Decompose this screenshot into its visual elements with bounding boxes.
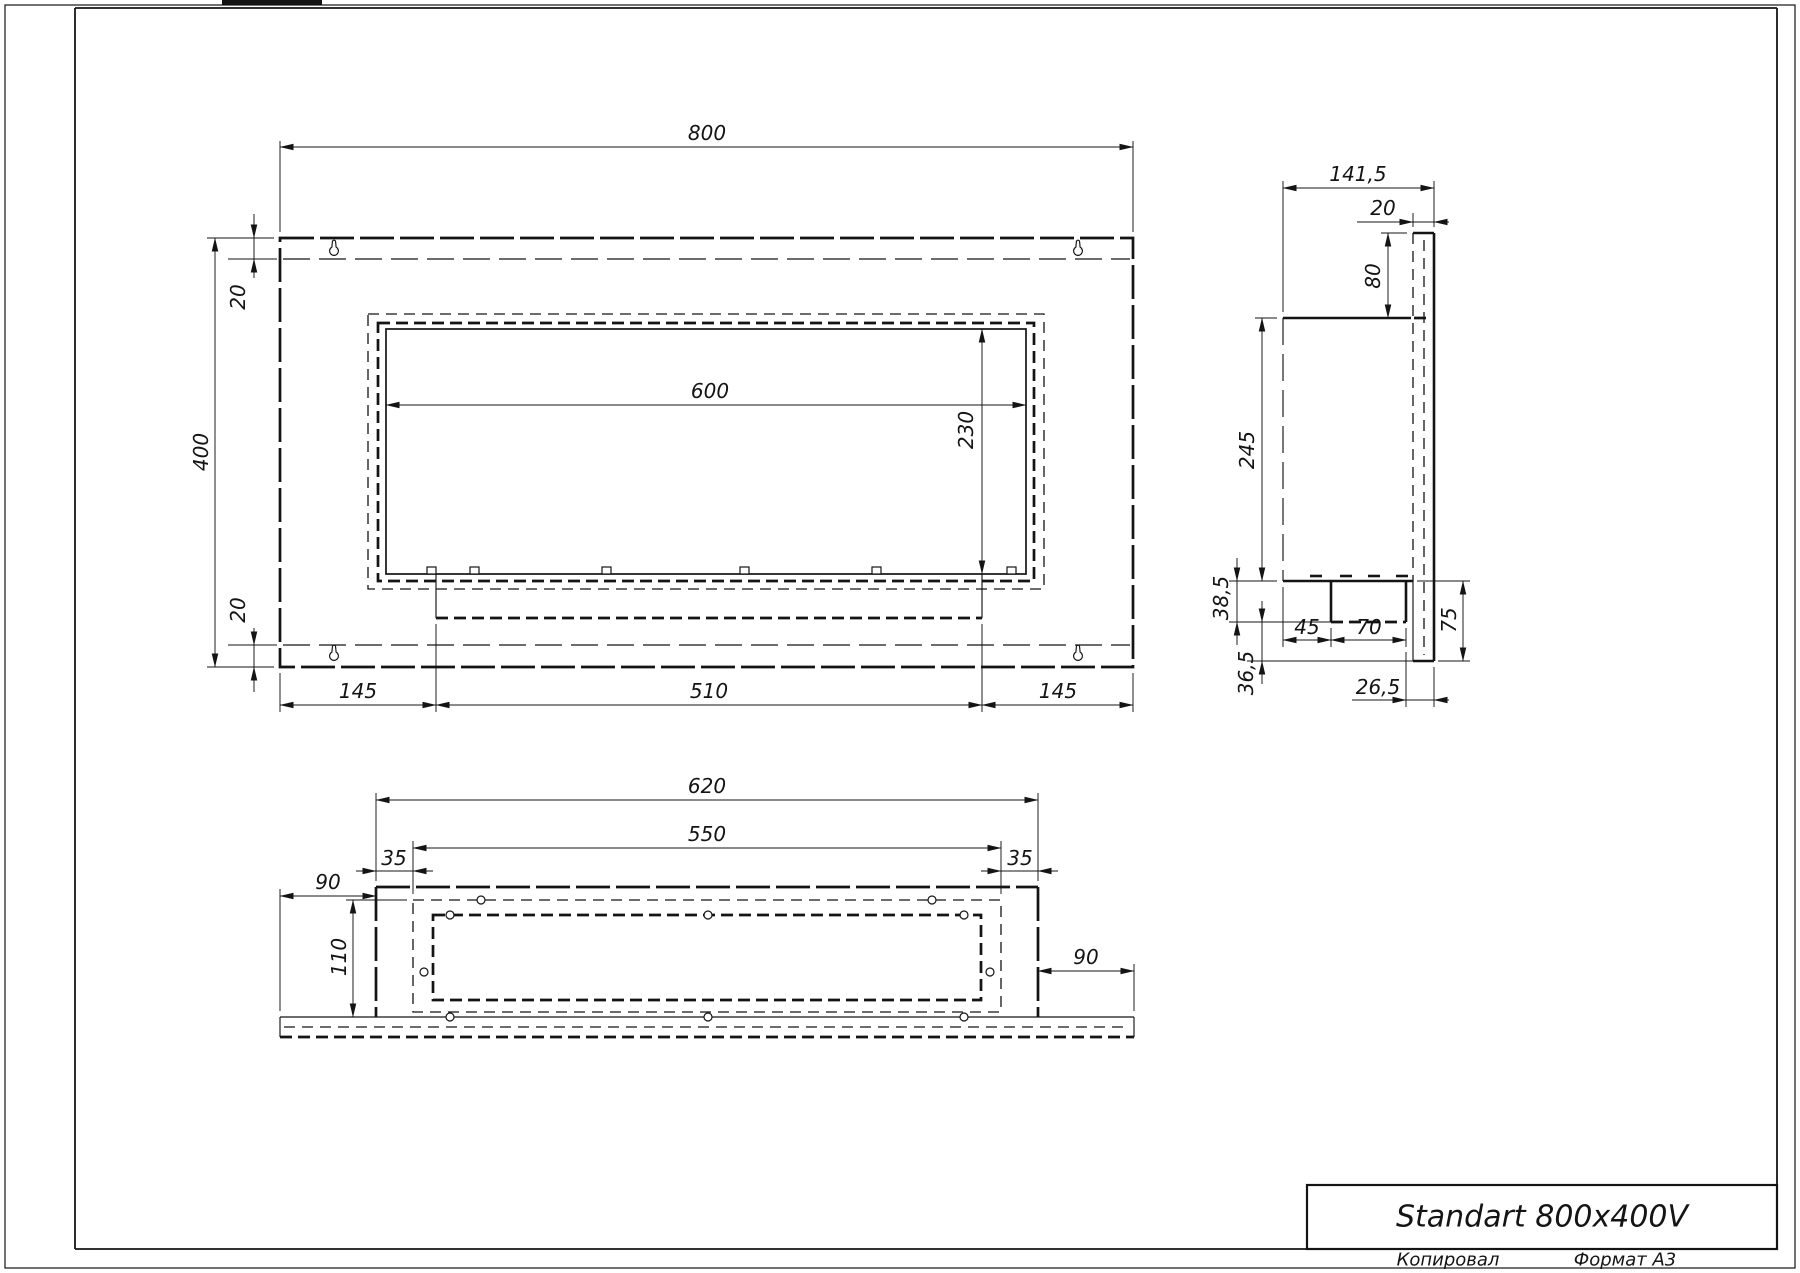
keyhole-slot-icon xyxy=(1074,240,1083,255)
dim-front-fold-bottom: 20 xyxy=(226,597,250,622)
keyhole-slot-icon xyxy=(330,240,339,255)
front-view: 800 400 20 20 600 230 xyxy=(189,121,1133,712)
drawing-sheet: 800 400 20 20 600 230 xyxy=(0,0,1800,1273)
dim-bottom-depth: 110 xyxy=(327,938,351,976)
front-opening-back-rect xyxy=(378,323,1034,581)
dim-side-burner-drop: 38,5 xyxy=(1209,576,1233,621)
dim-side-panel-width: 20 xyxy=(1370,196,1395,220)
dim-front-bottom-left: 145 xyxy=(339,679,377,703)
bottom-dimensions: 620 550 35 35 90 110 xyxy=(280,774,1134,1017)
dim-side-body-height: 245 xyxy=(1235,431,1259,469)
title-block: Standart 800x400V xyxy=(1307,1185,1777,1249)
dim-side-burner-to-edge: 26,5 xyxy=(1356,675,1401,699)
dim-bottom-margin-right: 35 xyxy=(1007,846,1032,870)
side-structure xyxy=(1283,233,1434,661)
dim-side-bottom-gap: 36,5 xyxy=(1234,651,1258,696)
drawing-title: Standart 800x400V xyxy=(1396,1200,1691,1235)
dim-side-burner-width: 70 xyxy=(1356,615,1381,639)
front-outer-rect xyxy=(280,238,1133,667)
front-dimensions: 800 400 20 20 600 230 xyxy=(189,121,1133,712)
keyhole-slot-icon xyxy=(330,645,339,660)
keyhole-slot-icon xyxy=(1074,645,1083,660)
dim-bottom-outer-width: 620 xyxy=(688,774,726,798)
side-dimensions: 141,5 20 80 245 38,5 xyxy=(1209,162,1470,707)
front-outline xyxy=(280,238,1133,667)
sheet-footer: Копировал Формат А3 xyxy=(1397,1250,1677,1271)
dim-side-depth: 141,5 xyxy=(1329,162,1386,186)
dim-front-opening-height: 230 xyxy=(954,411,978,449)
dim-side-burner-left: 45 xyxy=(1294,615,1319,639)
bottom-tray-rect xyxy=(433,915,981,1000)
front-opening xyxy=(368,314,1044,589)
footer-copied-label: Копировал xyxy=(1397,1250,1500,1271)
scan-artifact xyxy=(222,0,322,5)
bottom-structure xyxy=(280,887,1134,1037)
dim-front-fold-top: 20 xyxy=(226,284,250,309)
drawing-canvas: 800 400 20 20 600 230 xyxy=(0,0,1800,1273)
front-opening-hidden-rect xyxy=(368,314,1044,589)
bottom-view: 620 550 35 35 90 110 xyxy=(280,774,1134,1037)
dim-side-panel-drop: 75 xyxy=(1437,607,1461,632)
dim-front-bottom-right: 145 xyxy=(1039,679,1077,703)
dim-front-height: 400 xyxy=(189,433,213,471)
dim-side-top-offset: 80 xyxy=(1361,263,1385,288)
dim-bottom-flange-right: 90 xyxy=(1073,945,1098,969)
dim-front-bottom-center: 510 xyxy=(690,679,728,703)
front-keyholes xyxy=(330,240,1083,660)
footer-format-label: Формат А3 xyxy=(1574,1250,1677,1271)
dim-front-opening-width: 600 xyxy=(691,379,729,403)
sheet-frame xyxy=(5,0,1795,1268)
dim-bottom-inner-width: 550 xyxy=(688,822,726,846)
side-view: 141,5 20 80 245 38,5 xyxy=(1209,162,1470,707)
dim-bottom-flange-left: 90 xyxy=(315,870,340,894)
dim-front-width: 800 xyxy=(688,121,726,145)
front-clip-tabs xyxy=(427,567,1016,574)
front-opening-rect xyxy=(386,329,1026,574)
dim-bottom-margin-left: 35 xyxy=(381,846,406,870)
